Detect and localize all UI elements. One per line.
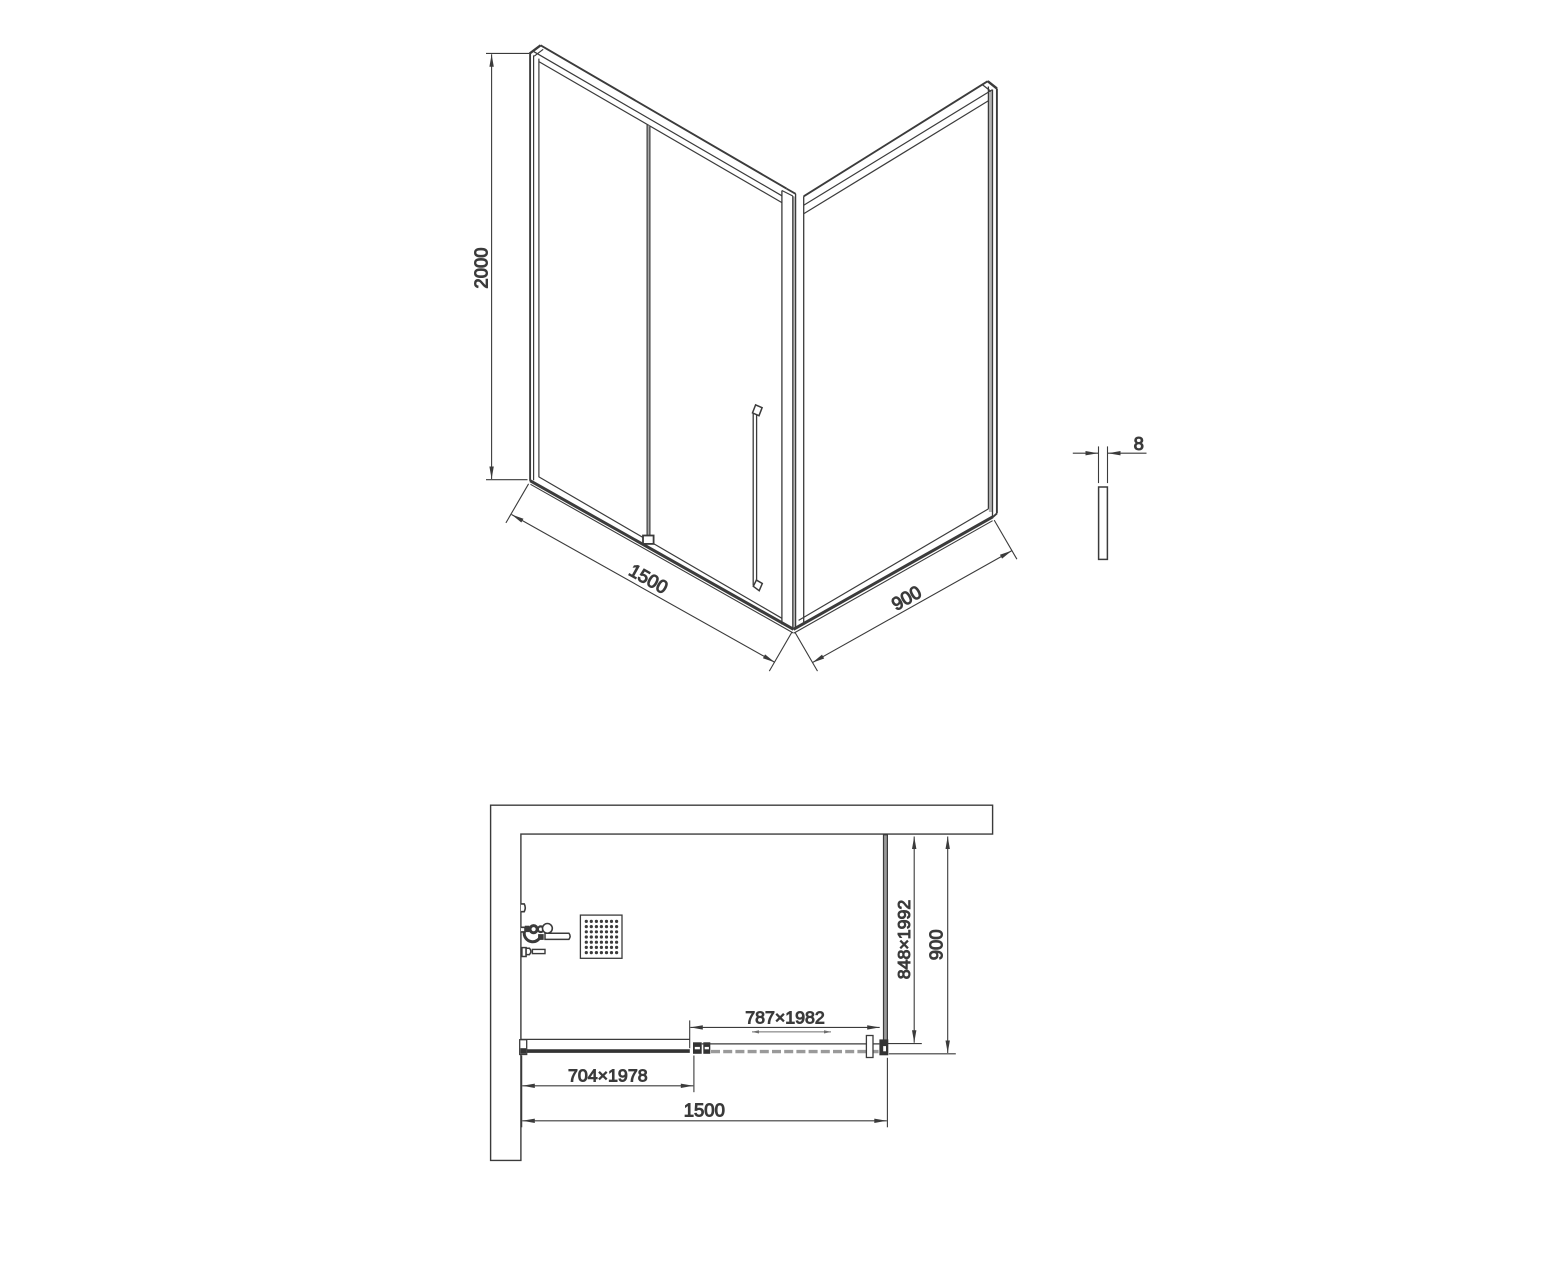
svg-text:787×1982: 787×1982 [745,1007,825,1027]
svg-text:2000: 2000 [471,247,492,288]
svg-text:848×1992: 848×1992 [894,900,914,980]
svg-text:8: 8 [1134,433,1144,454]
svg-text:900: 900 [925,929,946,960]
svg-text:900: 900 [888,581,925,614]
svg-text:704×1978: 704×1978 [568,1065,648,1085]
svg-text:1500: 1500 [684,1100,725,1121]
